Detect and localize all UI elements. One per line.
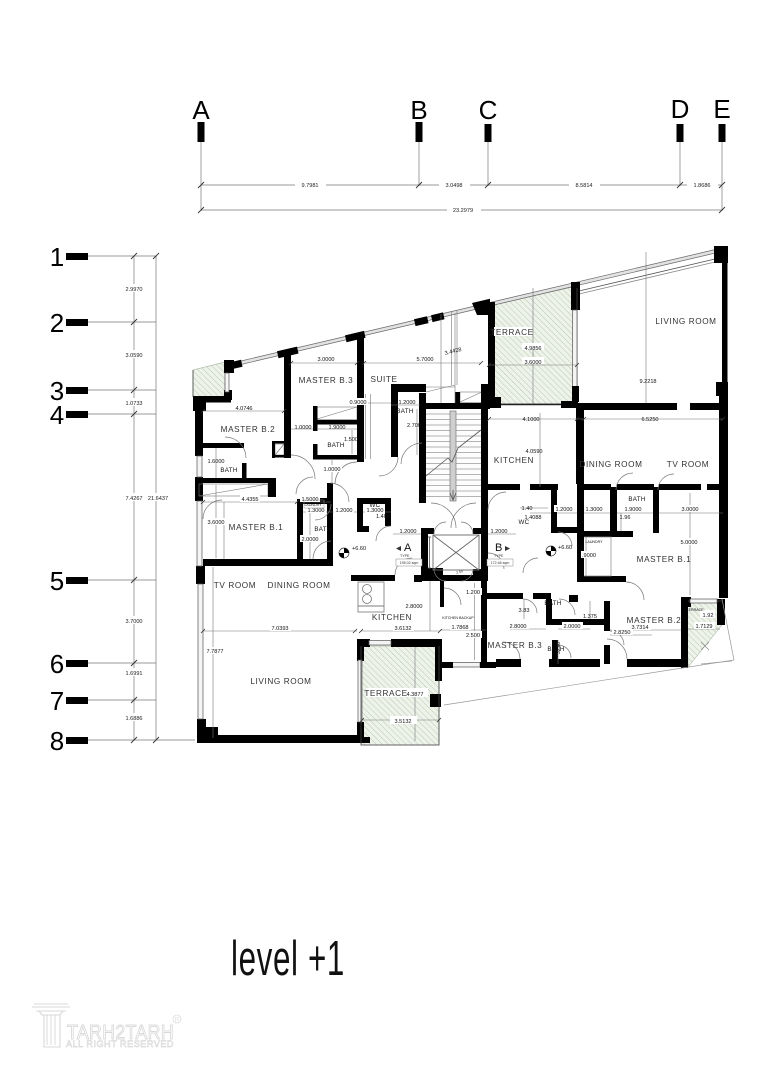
svg-text:5.7000: 5.7000: [416, 357, 433, 363]
svg-text:0.9000: 0.9000: [349, 400, 366, 406]
svg-text:KITCHEN BACKUP: KITCHEN BACKUP: [442, 616, 474, 620]
svg-text:6.5250: 6.5250: [641, 417, 658, 423]
svg-text:DINING ROOM: DINING ROOM: [267, 581, 330, 590]
svg-text:1: 1: [50, 242, 64, 272]
svg-text:7.4267: 7.4267: [125, 496, 142, 502]
svg-text:1.500: 1.500: [344, 437, 358, 443]
svg-text:7.7877: 7.7877: [206, 649, 223, 655]
svg-text:1.3000: 1.3000: [307, 508, 324, 514]
svg-text:5: 5: [50, 566, 64, 596]
svg-text:3.6000: 3.6000: [524, 360, 541, 366]
svg-text:4.9856: 4.9856: [524, 346, 541, 352]
svg-text:9.7981: 9.7981: [301, 183, 318, 189]
svg-text:7.0393: 7.0393: [271, 626, 288, 632]
svg-text:23.2979: 23.2979: [453, 208, 473, 214]
svg-text:1.2000: 1.2000: [399, 529, 416, 535]
svg-text:R: R: [175, 1018, 180, 1024]
svg-text:1.92: 1.92: [703, 613, 714, 619]
svg-text:MASTER B.1: MASTER B.1: [229, 523, 284, 532]
svg-text:1.0000: 1.0000: [323, 467, 340, 473]
svg-text:2.700: 2.700: [407, 423, 421, 429]
svg-text:6: 6: [50, 649, 64, 679]
svg-text:5.0000: 5.0000: [680, 540, 697, 546]
svg-text:1.0000: 1.0000: [294, 425, 311, 431]
svg-text:4.1000: 4.1000: [522, 417, 539, 423]
svg-text:3.83: 3.83: [519, 608, 530, 614]
svg-text:2.8250: 2.8250: [613, 630, 630, 636]
svg-text:1.40: 1.40: [522, 506, 533, 512]
svg-text:BATH: BATH: [314, 526, 331, 533]
svg-text:3.0590: 3.0590: [125, 353, 142, 359]
svg-text:KITCHEN: KITCHEN: [372, 613, 412, 622]
svg-text:1.0733: 1.0733: [125, 401, 142, 407]
svg-text:TYPE: TYPE: [494, 554, 504, 558]
svg-text:TV ROOM: TV ROOM: [214, 581, 256, 590]
svg-text:1.7868: 1.7868: [451, 625, 468, 631]
svg-text:2.50: 2.50: [456, 569, 464, 575]
svg-text:KITCHEN: KITCHEN: [494, 456, 534, 465]
svg-text:+6.60: +6.60: [558, 545, 572, 551]
svg-text:BATH: BATH: [220, 467, 237, 474]
svg-text:4.0746: 4.0746: [235, 406, 252, 412]
svg-text:1.3000: 1.3000: [585, 507, 602, 513]
svg-text:TERRACE: TERRACE: [364, 689, 407, 698]
svg-text:D: D: [671, 94, 690, 124]
svg-text:LAUNDRY: LAUNDRY: [304, 503, 322, 507]
svg-text:1.200: 1.200: [466, 590, 480, 596]
svg-text:4.3877: 4.3877: [406, 692, 423, 698]
svg-text:BATH: BATH: [396, 408, 413, 415]
svg-text:172.46 sqm: 172.46 sqm: [491, 561, 510, 565]
svg-text:1.2000: 1.2000: [555, 507, 572, 513]
svg-text:3250: 3250: [556, 642, 562, 654]
svg-text:A: A: [192, 95, 210, 125]
svg-text:BATH: BATH: [628, 496, 645, 503]
svg-text:A: A: [404, 542, 412, 554]
svg-text:3.0498: 3.0498: [445, 183, 462, 189]
svg-text:TERRACE: TERRACE: [490, 328, 533, 337]
svg-text:1.4088: 1.4088: [524, 515, 541, 521]
svg-text:LIVING ROOM: LIVING ROOM: [250, 677, 311, 686]
svg-text:3.6000: 3.6000: [207, 520, 224, 526]
svg-text:1.6000: 1.6000: [207, 459, 224, 465]
svg-text:21.6437: 21.6437: [148, 496, 168, 502]
svg-text:3.7000: 3.7000: [125, 619, 142, 625]
svg-text:3.6132: 3.6132: [394, 626, 411, 632]
svg-text:2.9970: 2.9970: [125, 287, 142, 293]
svg-text:1.2000: 1.2000: [335, 508, 352, 514]
svg-text:TYPE: TYPE: [400, 554, 410, 558]
svg-text:level +1: level +1: [231, 932, 345, 986]
svg-text:BATH: BATH: [327, 442, 344, 449]
svg-text:1.6991: 1.6991: [125, 671, 142, 677]
svg-text:ALL RIGHT RESERVED: ALL RIGHT RESERVED: [66, 1039, 174, 1050]
svg-text:1.2000: 1.2000: [398, 400, 415, 406]
svg-text:MASTER B.3: MASTER B.3: [299, 376, 354, 385]
svg-text:1.96: 1.96: [620, 515, 631, 521]
svg-text:9.2218: 9.2218: [639, 379, 656, 385]
svg-text:+6.60: +6.60: [352, 546, 366, 552]
svg-text:.9000: .9000: [582, 553, 596, 559]
svg-text:MASTER B.1: MASTER B.1: [637, 555, 692, 564]
svg-text:MASTER B.3: MASTER B.3: [488, 641, 543, 650]
svg-text:B: B: [410, 95, 427, 125]
svg-text:1.375: 1.375: [583, 614, 597, 620]
svg-text:7: 7: [50, 686, 64, 716]
svg-text:B: B: [495, 542, 502, 554]
svg-text:LIVING ROOM: LIVING ROOM: [655, 317, 716, 326]
svg-text:1.7129: 1.7129: [695, 624, 712, 630]
svg-text:C: C: [479, 95, 498, 125]
svg-text:1.6886: 1.6886: [125, 716, 142, 722]
svg-text:4: 4: [50, 400, 64, 430]
svg-text:3.5132: 3.5132: [394, 719, 411, 725]
svg-text:2.8000: 2.8000: [509, 624, 526, 630]
svg-text:1.400: 1.400: [376, 514, 390, 520]
svg-text:BATH: BATH: [544, 600, 561, 607]
svg-text:SUITE: SUITE: [370, 375, 397, 384]
svg-text:DINING ROOM: DINING ROOM: [579, 460, 642, 469]
svg-text:E: E: [713, 94, 730, 124]
svg-text:1.2000: 1.2000: [490, 529, 507, 535]
svg-text:8: 8: [50, 726, 64, 756]
svg-text:TV ROOM: TV ROOM: [667, 460, 709, 469]
svg-text:8.5814: 8.5814: [575, 183, 592, 189]
svg-text:1.9000: 1.9000: [328, 425, 345, 431]
svg-text:4.0590: 4.0590: [525, 449, 542, 455]
svg-text:3.0000: 3.0000: [681, 507, 698, 513]
svg-text:4.4355: 4.4355: [241, 497, 258, 503]
svg-text:2.500: 2.500: [466, 633, 480, 639]
svg-text:1.9000: 1.9000: [624, 507, 641, 513]
svg-text:TERRACE: TERRACE: [686, 608, 704, 612]
svg-text:3.0000: 3.0000: [317, 357, 334, 363]
svg-text:MASTER B.2: MASTER B.2: [221, 425, 276, 434]
svg-text:2.0000: 2.0000: [301, 537, 318, 543]
svg-text:2: 2: [50, 308, 64, 338]
svg-text:LAUNDRY: LAUNDRY: [585, 540, 603, 544]
svg-text:2.0000: 2.0000: [563, 624, 580, 630]
svg-text:2.8000: 2.8000: [405, 604, 422, 610]
svg-text:3.4428: 3.4428: [444, 347, 462, 357]
svg-text:195.02 sqm: 195.02 sqm: [400, 561, 419, 565]
svg-text:MASTER B.2: MASTER B.2: [627, 616, 682, 625]
svg-text:3.7314: 3.7314: [631, 625, 648, 631]
svg-text:1.8686: 1.8686: [693, 183, 710, 189]
